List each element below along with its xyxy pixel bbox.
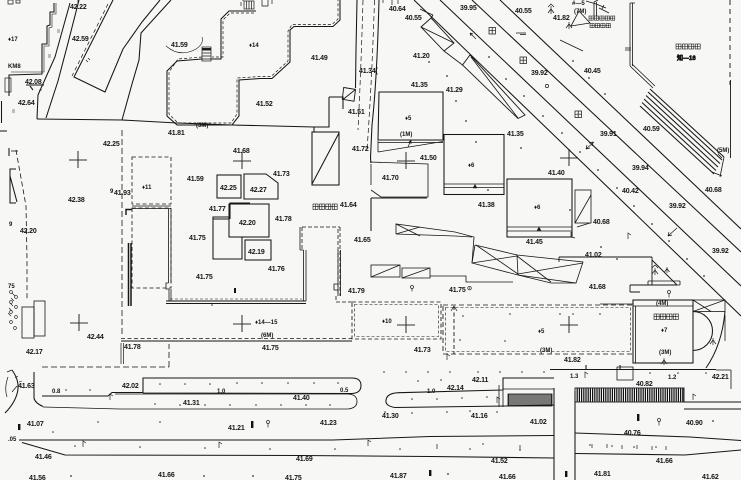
svg-text:41.81: 41.81	[168, 130, 185, 137]
svg-text:0.5: 0.5	[340, 388, 349, 394]
svg-text:41.23: 41.23	[320, 420, 337, 427]
svg-text:41.59: 41.59	[171, 42, 188, 49]
svg-text:41.72: 41.72	[352, 146, 369, 153]
svg-text:41.75: 41.75	[285, 475, 302, 480]
svg-text:41.75: 41.75	[449, 287, 466, 294]
svg-text:41.30: 41.30	[382, 413, 399, 420]
svg-text:41.63: 41.63	[18, 383, 35, 390]
svg-text:41.81: 41.81	[594, 471, 611, 478]
svg-text:1.0: 1.0	[217, 389, 226, 395]
svg-text:42.11: 42.11	[472, 377, 488, 384]
svg-text:41.02: 41.02	[530, 419, 547, 426]
svg-text:39.91: 39.91	[600, 131, 617, 138]
svg-text:42.08: 42.08	[25, 79, 42, 86]
svg-text:(7M): (7M)	[574, 9, 586, 15]
svg-text:#—5: #—5	[572, 1, 585, 7]
svg-text:42.20: 42.20	[239, 220, 256, 227]
svg-text:41.76: 41.76	[268, 266, 285, 273]
svg-text:⊙: ⊙	[467, 286, 472, 292]
svg-text:♦14—15: ♦14—15	[255, 320, 278, 326]
svg-text:♦5: ♦5	[405, 116, 412, 122]
svg-text:41.75: 41.75	[196, 274, 213, 281]
svg-text:41.62: 41.62	[702, 474, 719, 480]
svg-text:41.52: 41.52	[256, 101, 273, 108]
svg-text:(4M): (4M)	[656, 301, 668, 307]
svg-text:41.16: 41.16	[471, 413, 488, 420]
svg-text:40.55: 40.55	[515, 8, 532, 15]
svg-text:41.78: 41.78	[275, 216, 292, 223]
svg-text:41.79: 41.79	[348, 288, 365, 295]
svg-text:42.02: 42.02	[122, 383, 139, 390]
svg-text:39.92: 39.92	[669, 203, 686, 210]
svg-text:1.2: 1.2	[668, 375, 677, 381]
svg-text:42.22: 42.22	[70, 4, 87, 11]
svg-text:42.38: 42.38	[68, 197, 85, 204]
svg-text:42.44: 42.44	[87, 334, 104, 341]
svg-text:41.93: 41.93	[114, 190, 131, 197]
svg-text:41.68: 41.68	[233, 148, 250, 155]
svg-text:42.25: 42.25	[103, 141, 120, 148]
svg-text:41.87: 41.87	[390, 473, 407, 480]
svg-text:40.90: 40.90	[686, 420, 703, 427]
svg-text:41.46: 41.46	[35, 454, 52, 461]
svg-text:41.66: 41.66	[499, 474, 516, 480]
svg-text:41.78: 41.78	[124, 344, 141, 351]
svg-text:41.77: 41.77	[209, 206, 226, 213]
svg-text:(3M): (3M)	[196, 123, 208, 129]
svg-text:41.56: 41.56	[29, 475, 46, 480]
svg-text:41.82: 41.82	[564, 357, 581, 364]
svg-text:42.27: 42.27	[250, 187, 267, 194]
svg-text:.05: .05	[8, 437, 17, 443]
svg-text:41.45: 41.45	[526, 239, 543, 246]
svg-text:1.0: 1.0	[427, 389, 436, 395]
svg-text:40.45: 40.45	[584, 68, 601, 75]
svg-text:41.38: 41.38	[478, 202, 495, 209]
svg-text:41.35: 41.35	[411, 82, 428, 89]
svg-text:♦7: ♦7	[661, 328, 668, 334]
svg-text:知—16: 知—16	[677, 54, 696, 62]
svg-text:42.21: 42.21	[712, 374, 729, 381]
svg-text:41.29: 41.29	[446, 87, 463, 94]
svg-text:40.76: 40.76	[624, 430, 641, 437]
svg-text:♦6: ♦6	[534, 205, 541, 211]
svg-text:40.42: 40.42	[622, 188, 639, 195]
svg-text:41.40: 41.40	[548, 170, 565, 177]
svg-text:41.21: 41.21	[228, 425, 245, 432]
svg-text:41.73: 41.73	[273, 171, 290, 178]
svg-text:41.50: 41.50	[420, 155, 437, 162]
svg-text:1.3: 1.3	[570, 374, 579, 380]
svg-text:41.40: 41.40	[293, 395, 310, 402]
svg-text:41.52: 41.52	[491, 458, 508, 465]
svg-text:39.92: 39.92	[531, 70, 548, 77]
svg-text:(5M): (5M)	[717, 148, 729, 154]
svg-text:41.68: 41.68	[589, 284, 606, 291]
svg-text:(6M): (6M)	[261, 333, 273, 339]
svg-text:42.59: 42.59	[72, 36, 89, 43]
svg-text:39.94: 39.94	[632, 165, 649, 172]
svg-text:42.17: 42.17	[26, 349, 43, 356]
svg-text:KM8: KM8	[8, 64, 21, 70]
svg-text:42.64: 42.64	[18, 100, 35, 107]
svg-text:41.34(: 41.34(	[359, 68, 379, 75]
svg-text:♦6: ♦6	[468, 163, 475, 169]
svg-text:41.66: 41.66	[158, 472, 175, 479]
svg-text:39.95: 39.95	[460, 5, 477, 12]
svg-text:40.82: 40.82	[636, 381, 653, 388]
svg-text:40.68: 40.68	[705, 187, 722, 194]
svg-text:39.92: 39.92	[712, 248, 729, 255]
svg-text:♦17: ♦17	[8, 37, 18, 43]
svg-text:40.59: 40.59	[643, 126, 660, 133]
svg-text:75: 75	[8, 284, 15, 290]
svg-text:41.59: 41.59	[187, 176, 204, 183]
svg-text:41.73: 41.73	[414, 347, 431, 354]
svg-text:41.69: 41.69	[296, 456, 313, 463]
svg-text:0.8: 0.8	[52, 389, 61, 395]
svg-text:41.64: 41.64	[340, 202, 357, 209]
svg-text:41.75: 41.75	[262, 345, 279, 352]
svg-text:41.51: 41.51	[348, 109, 365, 116]
svg-text:41.07: 41.07	[27, 421, 44, 428]
svg-text:♦14: ♦14	[249, 43, 259, 49]
svg-text:♦5: ♦5	[538, 329, 545, 335]
svg-text:41.65: 41.65	[354, 237, 371, 244]
svg-text:40.64: 40.64	[389, 6, 406, 13]
svg-text:42.19: 42.19	[248, 249, 265, 256]
svg-text:41.02: 41.02	[585, 252, 602, 259]
svg-text:♦11: ♦11	[142, 185, 152, 191]
svg-text:40.68: 40.68	[593, 219, 610, 226]
svg-text:41.70: 41.70	[382, 175, 399, 182]
svg-text:41.75: 41.75	[189, 235, 206, 242]
svg-text:(3M): (3M)	[659, 350, 671, 356]
svg-text:♦10: ♦10	[382, 319, 392, 325]
svg-text:42.14: 42.14	[447, 385, 464, 392]
svg-text:41.66: 41.66	[656, 458, 673, 465]
svg-text:41.82: 41.82	[553, 15, 570, 22]
svg-text:41.20: 41.20	[413, 53, 430, 60]
svg-text:(3M): (3M)	[540, 348, 552, 354]
svg-text:41.35: 41.35	[507, 131, 524, 138]
svg-text:42.25: 42.25	[220, 185, 237, 192]
svg-text:40.55: 40.55	[405, 15, 422, 22]
svg-text:41.31: 41.31	[183, 400, 200, 407]
svg-text:41.49: 41.49	[311, 55, 328, 62]
svg-text:(1M): (1M)	[400, 132, 412, 138]
svg-text:42.20: 42.20	[20, 228, 37, 235]
